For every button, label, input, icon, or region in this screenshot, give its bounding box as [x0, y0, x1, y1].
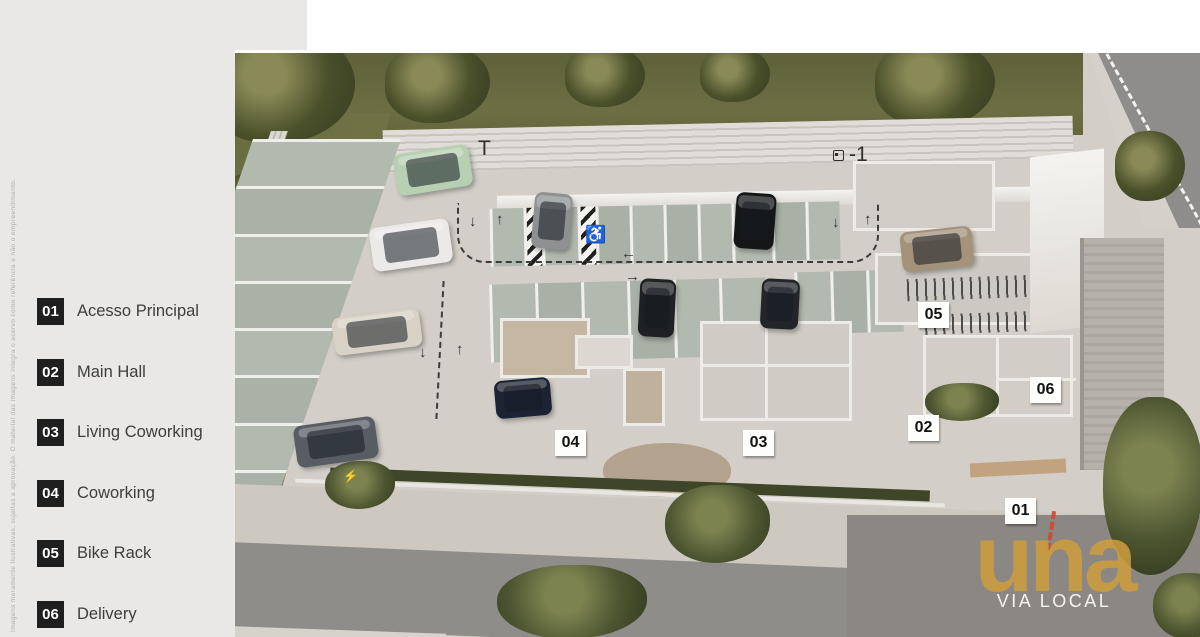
- level-label: -1: [833, 143, 868, 167]
- direction-arrow: ←: [621, 245, 636, 262]
- structure-block: [623, 368, 665, 426]
- direction-arrow: ↑: [496, 211, 504, 228]
- legend-item: 06Delivery: [0, 601, 235, 628]
- floor-label: T: [478, 137, 491, 161]
- circulation-lane: [435, 281, 444, 419]
- elevator-icon: [833, 150, 844, 161]
- legend-number-badge: 04: [37, 480, 64, 507]
- legend-label: Main Hall: [77, 363, 146, 382]
- site-plan-render: ↓↑←→↓↑↓↑ T -1 ♿ ⚡ 010203040506 una VIA L…: [235, 53, 1200, 637]
- legend-list: 01Acesso Principal02Main Hall03Living Co…: [0, 298, 235, 628]
- living-coworking-rooms: [700, 321, 852, 421]
- bike-rack: [907, 275, 1034, 301]
- brand-logo: una VIA LOCAL: [921, 515, 1187, 633]
- legend-number-badge: 05: [37, 540, 64, 567]
- direction-arrow: ↓: [419, 344, 427, 361]
- legend-item: 03Living Coworking: [0, 419, 235, 446]
- plan-marker-05: 05: [918, 302, 949, 328]
- tree: [497, 565, 647, 637]
- car: [531, 191, 574, 250]
- legend-label: Delivery: [77, 605, 137, 624]
- plan-marker-04: 04: [555, 430, 586, 456]
- ev-charger-icon: ⚡: [343, 469, 358, 483]
- structure-block: [575, 335, 633, 369]
- legend-number-badge: 03: [37, 419, 64, 446]
- direction-arrow: ↑: [456, 341, 464, 358]
- legend-item: 01Acesso Principal: [0, 298, 235, 325]
- legend-number-badge: 06: [37, 601, 64, 628]
- direction-arrow: ↓: [832, 214, 840, 231]
- legend-item: 04Coworking: [0, 480, 235, 507]
- plan-marker-06: 06: [1030, 377, 1061, 403]
- car: [331, 308, 423, 356]
- sidebar-top-extension: [235, 0, 307, 50]
- car: [368, 218, 453, 273]
- legend-label: Acesso Principal: [77, 302, 199, 321]
- plan-marker-02: 02: [908, 415, 939, 441]
- direction-arrow: →: [625, 268, 640, 285]
- accessible-parking-icon: ♿: [585, 225, 606, 245]
- car: [638, 278, 677, 338]
- legend-item: 02Main Hall: [0, 359, 235, 386]
- plan-marker-03: 03: [743, 430, 774, 456]
- circulation-path: [457, 203, 879, 263]
- direction-arrow: ↑: [864, 211, 872, 228]
- reception-desk: [970, 458, 1067, 477]
- direction-arrow: ↓: [469, 213, 477, 230]
- legend-label: Living Coworking: [77, 423, 203, 442]
- car: [493, 377, 552, 420]
- car: [760, 278, 801, 330]
- legend-label: Coworking: [77, 484, 155, 503]
- logo-brand-text: una: [921, 515, 1187, 603]
- legend-item: 05Bike Rack: [0, 540, 235, 567]
- car: [733, 192, 777, 251]
- legend-sidebar: Imagens meramente ilustrativas, sujeitas…: [0, 0, 235, 637]
- legend-number-badge: 01: [37, 298, 64, 325]
- legend-number-badge: 02: [37, 359, 64, 386]
- car: [899, 225, 975, 272]
- legend-label: Bike Rack: [77, 544, 151, 563]
